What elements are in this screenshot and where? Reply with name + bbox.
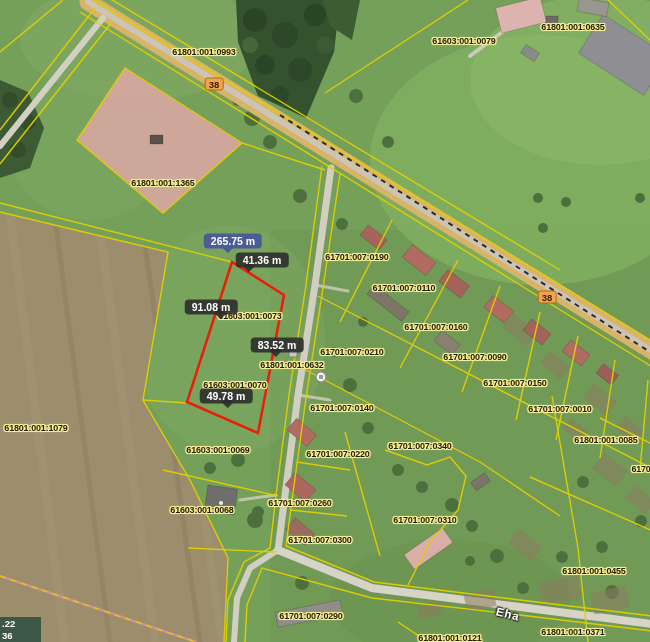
measurement-total-badge: 265.75 m <box>204 234 262 249</box>
parcel-label: 61701:007:0340 <box>388 441 451 451</box>
parcel-label: 61701:007:0190 <box>325 252 388 262</box>
parcel-label: 61801:001:1365 <box>131 178 194 188</box>
coordinate-line2: 36 <box>2 630 41 642</box>
parcel-label: 61701:007:0160 <box>404 322 467 332</box>
parcel-label: 61603:001:0068 <box>170 505 233 515</box>
parcel-label: 61701:007:0150 <box>483 378 546 388</box>
parcel-label: 61801:001:1079 <box>4 423 67 433</box>
road-number-badge: 38 <box>538 291 557 304</box>
parcel-label: 61801:001:0993 <box>172 47 235 57</box>
parcel-label: 61701:007:0090 <box>443 352 506 362</box>
badge-tail <box>270 346 281 357</box>
parcel-label: 61701:007:0210 <box>320 347 383 357</box>
parcel-label: 61701:007:0260 <box>268 498 331 508</box>
parcel-label: 61603:001:0069 <box>186 445 249 455</box>
parcel-label: 61603:001:0079 <box>432 36 495 46</box>
measurement-layer: 265.75 m41.36 m91.08 m83.52 m49.78 m <box>0 0 650 642</box>
road-number-badge: 38 <box>205 78 224 91</box>
parcel-label: 61701:007:0010 <box>528 404 591 414</box>
parcel-label: 61801:001:0632 <box>260 360 323 370</box>
badge-tail <box>244 261 255 272</box>
badge-tail <box>222 397 233 408</box>
parcel-label: 61801:001:0121 <box>418 633 481 642</box>
parcel-label: 61801:001:0635 <box>541 22 604 32</box>
parcel-label: 61801:001:0371 <box>541 627 604 637</box>
measurement-badge: 91.08 m <box>185 300 238 315</box>
measurement-badge: 41.36 m <box>236 253 289 268</box>
parcel-label: 61801:001:0085 <box>574 435 637 445</box>
parcel-label: 61701:007 <box>631 464 650 474</box>
parcel-label: 61701:007:0310 <box>393 515 456 525</box>
measurement-badge: 49.78 m <box>200 389 253 404</box>
parcel-label: 61701:007:0290 <box>279 611 342 621</box>
map-viewport[interactable]: 61801:001:099361603:001:007961801:001:06… <box>0 0 650 642</box>
coordinate-overlay: .22 36 <box>0 617 41 642</box>
measurement-badge: 83.52 m <box>251 338 304 353</box>
parcel-label: 61701:007:0300 <box>288 535 351 545</box>
badge-tail <box>223 242 234 253</box>
coordinate-line1: .22 <box>2 618 41 630</box>
parcel-label: 61701:007:0220 <box>306 449 369 459</box>
parcel-label: 61801:001:0455 <box>562 566 625 576</box>
parcel-label: 61701:007:0110 <box>373 283 436 293</box>
parcel-label: 61701:007:0140 <box>310 403 373 413</box>
